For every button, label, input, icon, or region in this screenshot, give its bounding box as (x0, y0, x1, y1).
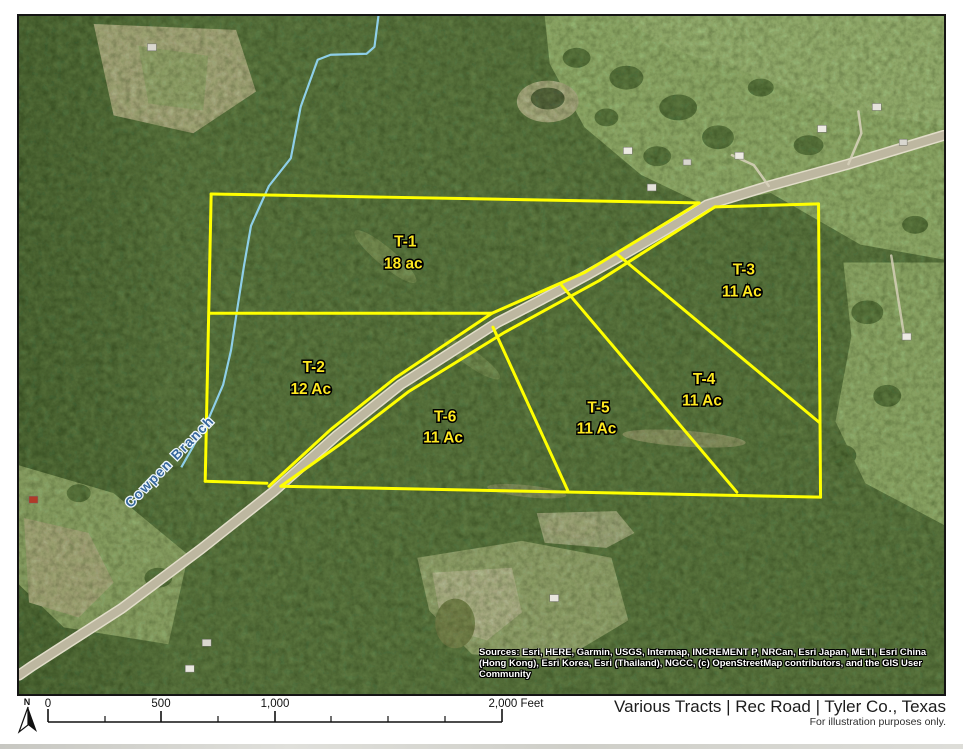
disclaimer-text: For illustration purposes only. (810, 716, 946, 728)
attribution-text: Sources: Esri, HERE, Garmin, USGS, Inter… (479, 648, 941, 681)
tract-acreage-t1: 18 ac (384, 256, 423, 273)
scale-tick-label-0: 0 (45, 698, 51, 710)
tract-acreage-t3: 11 Ac (722, 283, 762, 300)
map-title: Various Tracts | Rec Road | Tyler Co., T… (614, 697, 946, 717)
attribution-block: Sources: Esri, HERE, Garmin, USGS, Inter… (479, 648, 941, 694)
tract-outline-right (819, 204, 821, 497)
scale-tick-label-1000: 1,000 (261, 698, 290, 710)
tract-label-t4: T-4 (693, 371, 716, 388)
tract-label-t2: T-2 (303, 359, 325, 376)
tract-label-t1: T-1 (394, 234, 417, 251)
tract-label-t6: T-6 (434, 409, 457, 426)
tract-acreage-t4: 11 Ac (682, 393, 722, 410)
forest-texture-light (19, 16, 944, 694)
scale-bar: 0 500 1,000 2,000 Feet (0, 694, 600, 740)
map-frame: T-1 18 ac T-2 12 Ac T-3 11 Ac T-4 11 Ac … (17, 14, 946, 696)
tract-acreage-t2: 12 Ac (290, 381, 331, 398)
tract-label-t5: T-5 (587, 400, 610, 417)
map-exhibit-page: T-1 18 ac T-2 12 Ac T-3 11 Ac T-4 11 Ac … (0, 0, 963, 749)
tract-outline-bottom-left (205, 481, 267, 483)
tract-acreage-t5: 11 Ac (577, 421, 617, 438)
tract-label-t3: T-3 (733, 261, 756, 278)
scale-tick-label-2000-feet: 2,000 Feet (489, 698, 545, 710)
tract-acreage-t6: 11 Ac (423, 429, 463, 446)
scale-tick-label-500: 500 (151, 698, 170, 710)
map-canvas: T-1 18 ac T-2 12 Ac T-3 11 Ac T-4 11 Ac … (19, 16, 944, 694)
page-bottom-edge (0, 744, 963, 749)
